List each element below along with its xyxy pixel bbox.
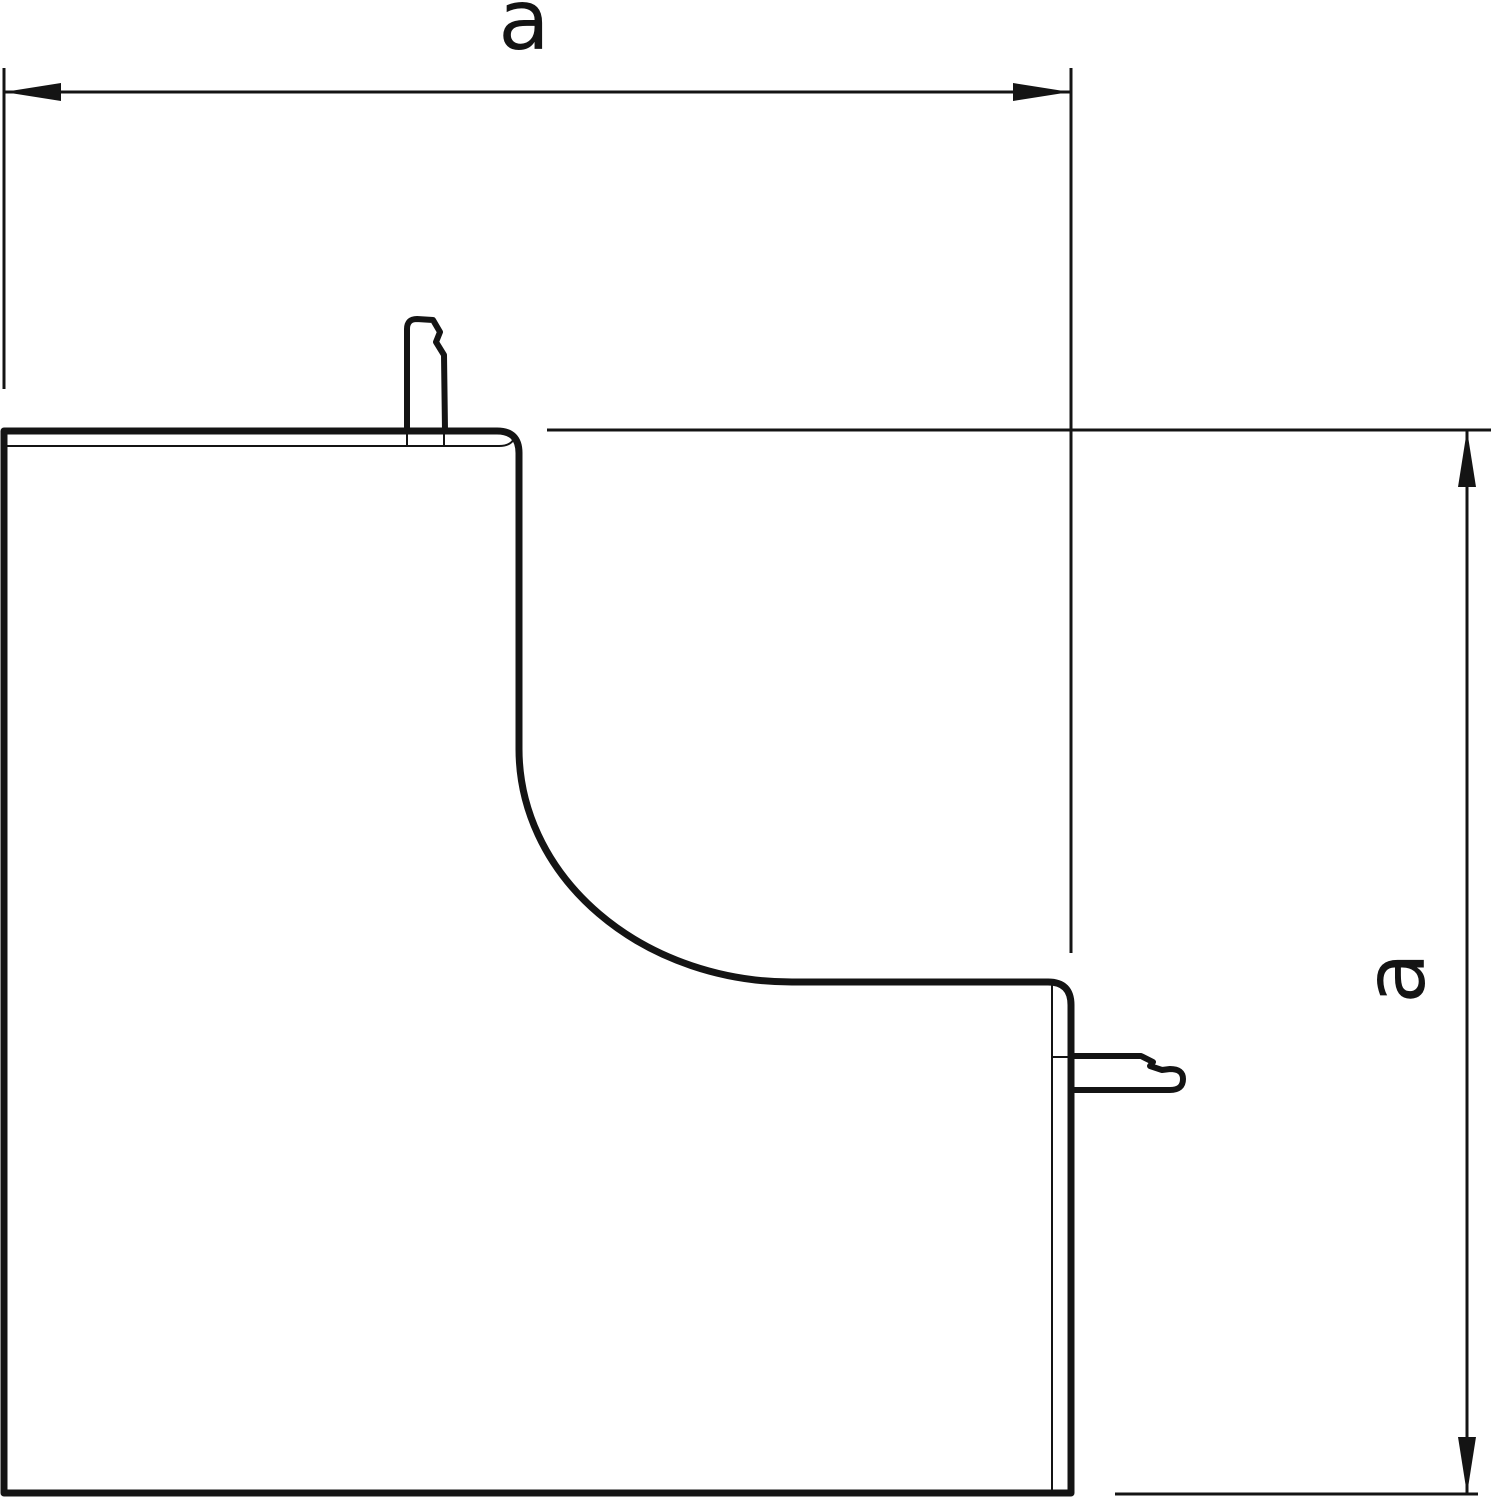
width-dimension: a [4,0,1071,953]
width-dimension-label: a [498,0,549,69]
corner-cover-drawing: a a [0,0,1491,1500]
part-outline-group [4,319,1183,1493]
top-inner-edge-line [4,439,514,446]
top-clip-tab [407,319,445,430]
height-arrow-bottom-icon [1458,1437,1476,1494]
height-dimension-label: a [1346,952,1444,1003]
part-body-outline [4,431,1071,1493]
width-arrow-right-icon [1013,83,1070,101]
inner-edge-lines [4,434,1069,1491]
width-arrow-left-icon [4,83,61,101]
technical-drawing-canvas: a a [0,0,1491,1500]
right-clip-tab [1071,1056,1183,1090]
height-arrow-top-icon [1458,430,1476,487]
